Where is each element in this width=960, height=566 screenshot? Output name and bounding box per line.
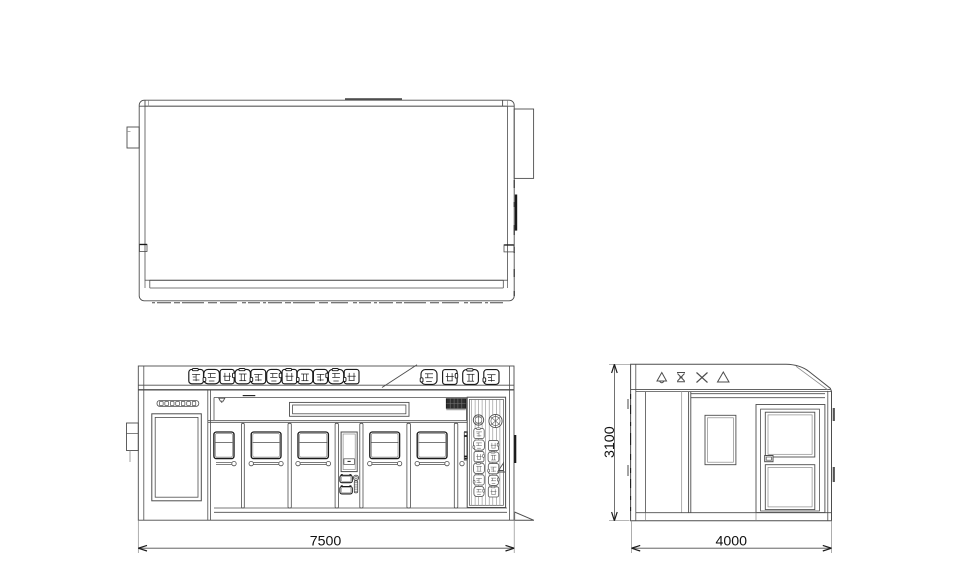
svg-text:3100: 3100 — [602, 426, 618, 458]
svg-text:7500: 7500 — [310, 534, 342, 550]
svg-text:4000: 4000 — [716, 534, 748, 550]
